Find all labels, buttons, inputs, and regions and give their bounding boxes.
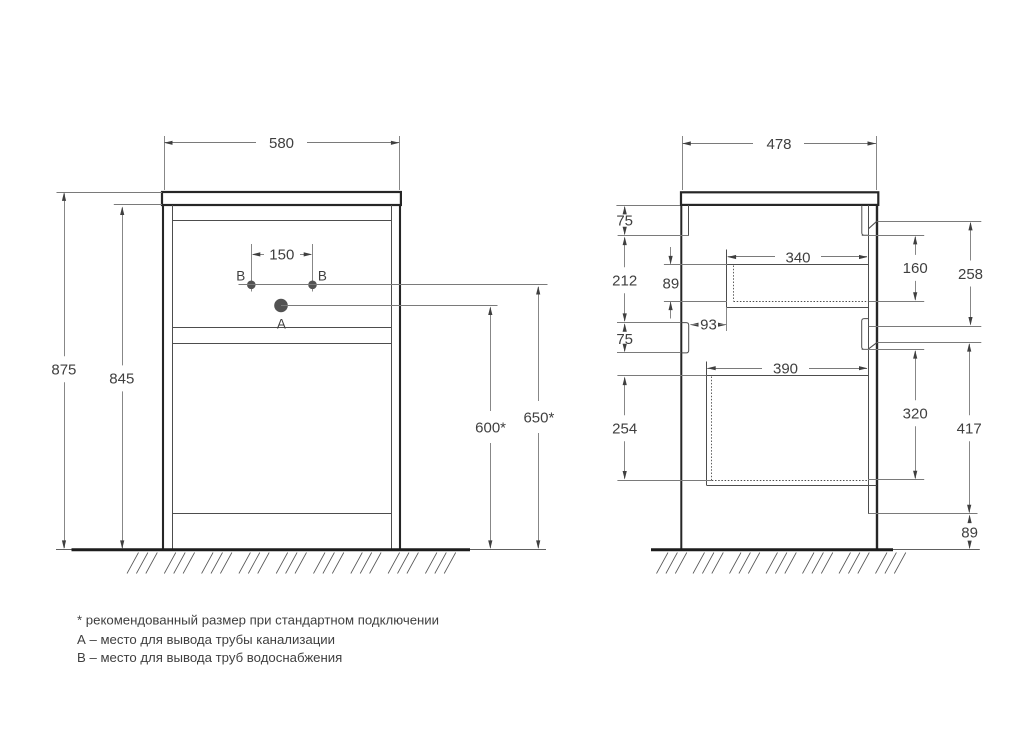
svg-text:93: 93 [700, 317, 717, 334]
svg-text:75: 75 [616, 331, 633, 348]
svg-text:A: A [277, 316, 286, 331]
svg-text:150: 150 [269, 247, 294, 264]
svg-text:* рекомендованный размер при с: * рекомендованный размер при стандартном… [77, 612, 439, 627]
svg-text:89: 89 [663, 276, 680, 293]
svg-text:580: 580 [269, 135, 294, 152]
svg-text:А – место для вывода трубы кан: А – место для вывода трубы канализации [77, 632, 335, 647]
svg-text:417: 417 [957, 421, 982, 438]
svg-text:875: 875 [51, 362, 76, 379]
svg-text:B: B [318, 269, 327, 284]
svg-text:212: 212 [612, 273, 637, 290]
svg-text:B: B [236, 269, 245, 284]
svg-text:254: 254 [612, 421, 637, 438]
svg-text:160: 160 [903, 260, 928, 277]
svg-text:75: 75 [616, 213, 633, 230]
svg-text:390: 390 [773, 361, 798, 378]
svg-text:650*: 650* [523, 409, 554, 426]
svg-text:В – место для вывода труб водо: В – место для вывода труб водоснабжения [77, 650, 342, 665]
svg-text:478: 478 [766, 136, 791, 153]
svg-text:320: 320 [903, 406, 928, 423]
svg-text:340: 340 [785, 249, 810, 266]
svg-text:600*: 600* [475, 419, 506, 436]
svg-text:89: 89 [961, 525, 978, 542]
svg-text:258: 258 [958, 266, 983, 283]
svg-text:845: 845 [109, 371, 134, 388]
